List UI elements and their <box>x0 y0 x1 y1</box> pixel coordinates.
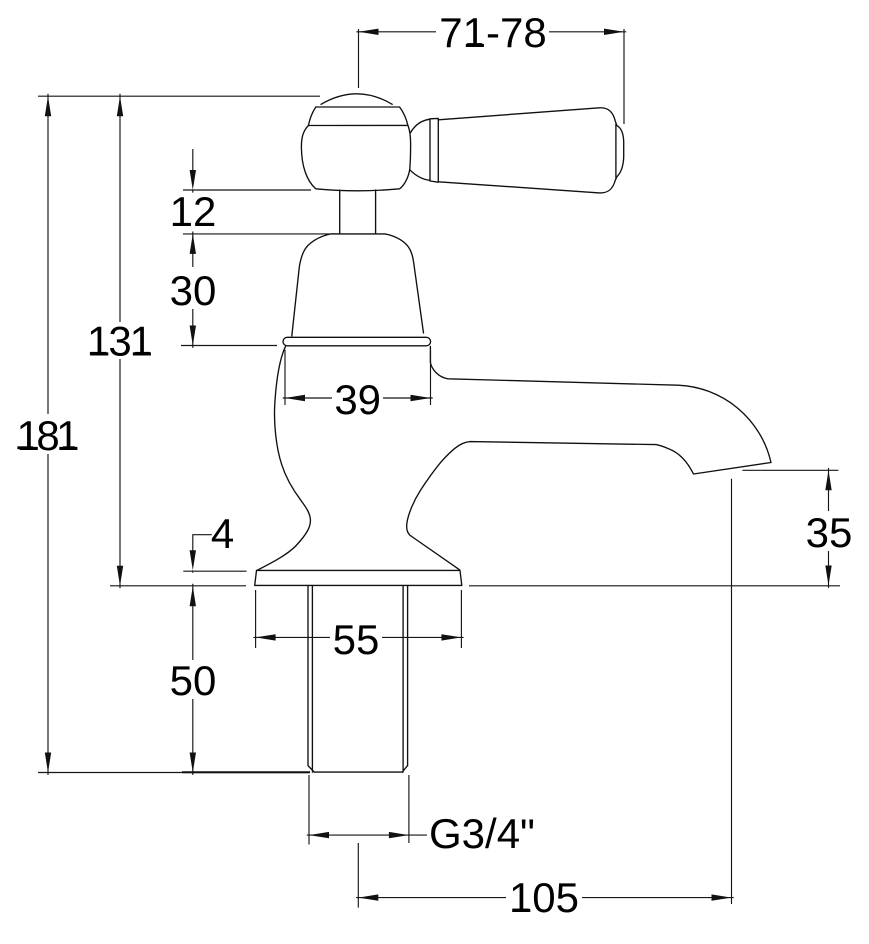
svg-text:50: 50 <box>170 657 217 704</box>
svg-text:181: 181 <box>17 412 80 459</box>
svg-text:G3/4": G3/4" <box>429 810 535 857</box>
svg-text:35: 35 <box>806 509 853 556</box>
svg-text:4: 4 <box>211 510 234 557</box>
svg-text:105: 105 <box>509 874 579 921</box>
svg-text:55: 55 <box>333 616 380 663</box>
svg-text:71-78: 71-78 <box>439 9 546 56</box>
svg-text:12: 12 <box>170 188 217 235</box>
svg-text:39: 39 <box>334 376 381 423</box>
svg-text:30: 30 <box>170 267 217 314</box>
svg-text:131: 131 <box>87 318 153 365</box>
